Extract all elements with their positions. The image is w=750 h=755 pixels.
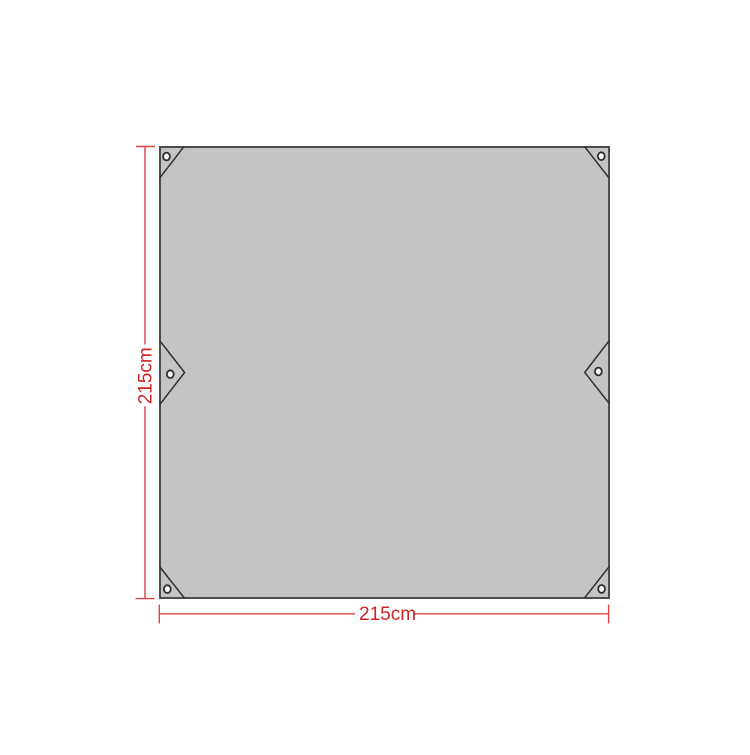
svg-text:215cm: 215cm bbox=[359, 604, 416, 625]
svg-text:215cm: 215cm bbox=[135, 347, 156, 404]
